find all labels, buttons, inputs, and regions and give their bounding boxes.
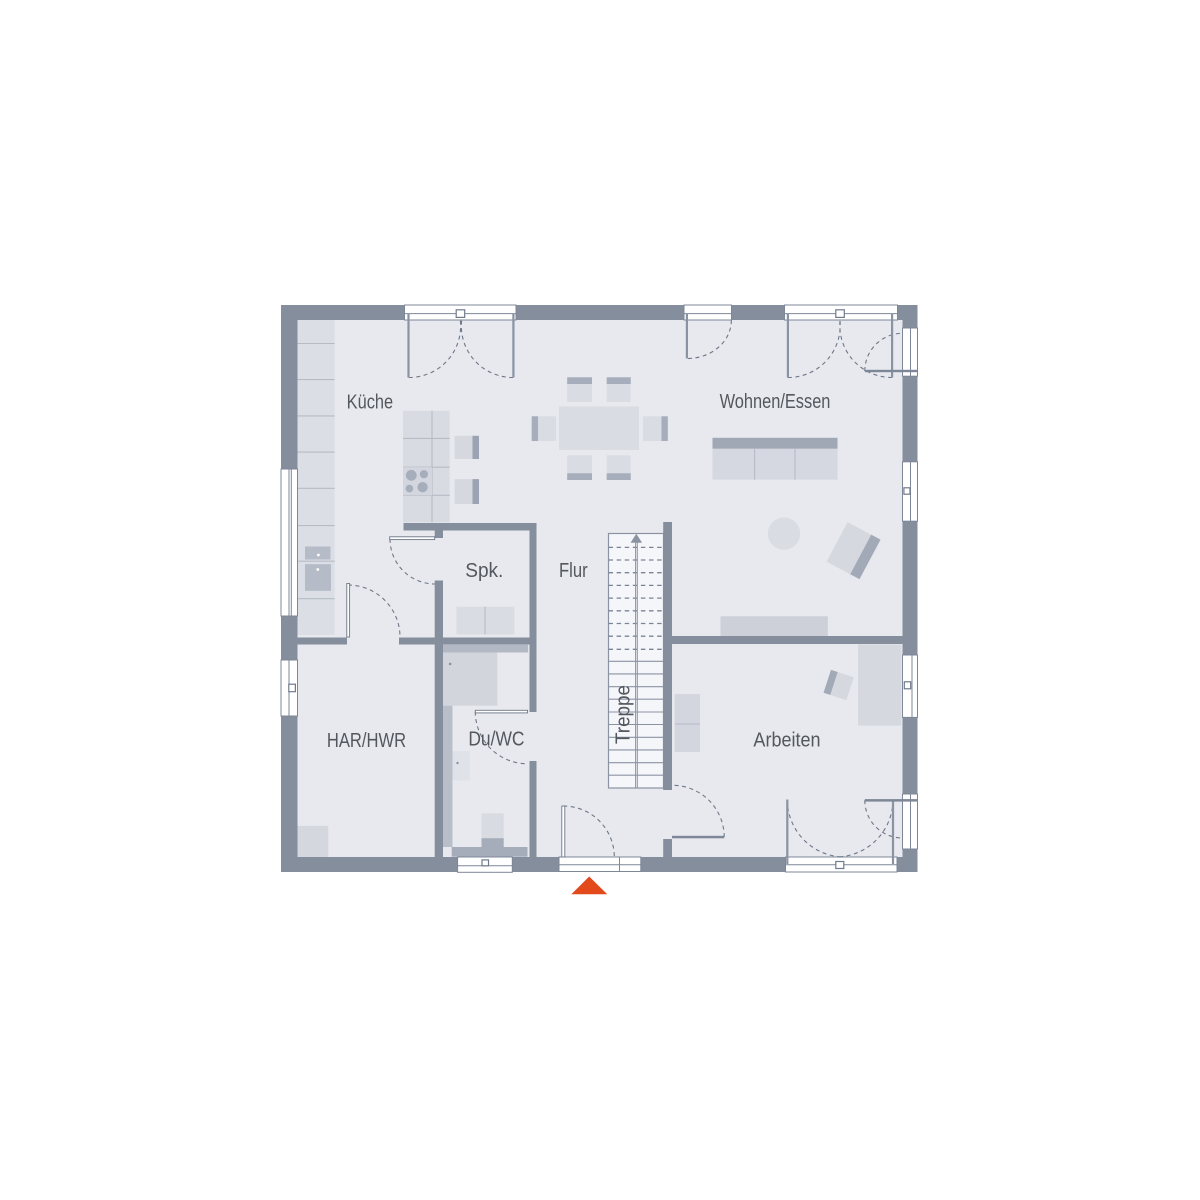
svg-text:Küche: Küche bbox=[347, 390, 393, 413]
svg-text:HAR/HWR: HAR/HWR bbox=[327, 728, 406, 751]
svg-text:Arbeiten: Arbeiten bbox=[753, 730, 820, 752]
svg-text:Spk.: Spk. bbox=[465, 559, 503, 582]
svg-text:Wohnen/Essen: Wohnen/Essen bbox=[720, 389, 831, 412]
svg-text:Flur: Flur bbox=[559, 558, 588, 581]
svg-text:Treppe: Treppe bbox=[612, 685, 635, 744]
svg-text:Du/WC: Du/WC bbox=[468, 728, 524, 751]
